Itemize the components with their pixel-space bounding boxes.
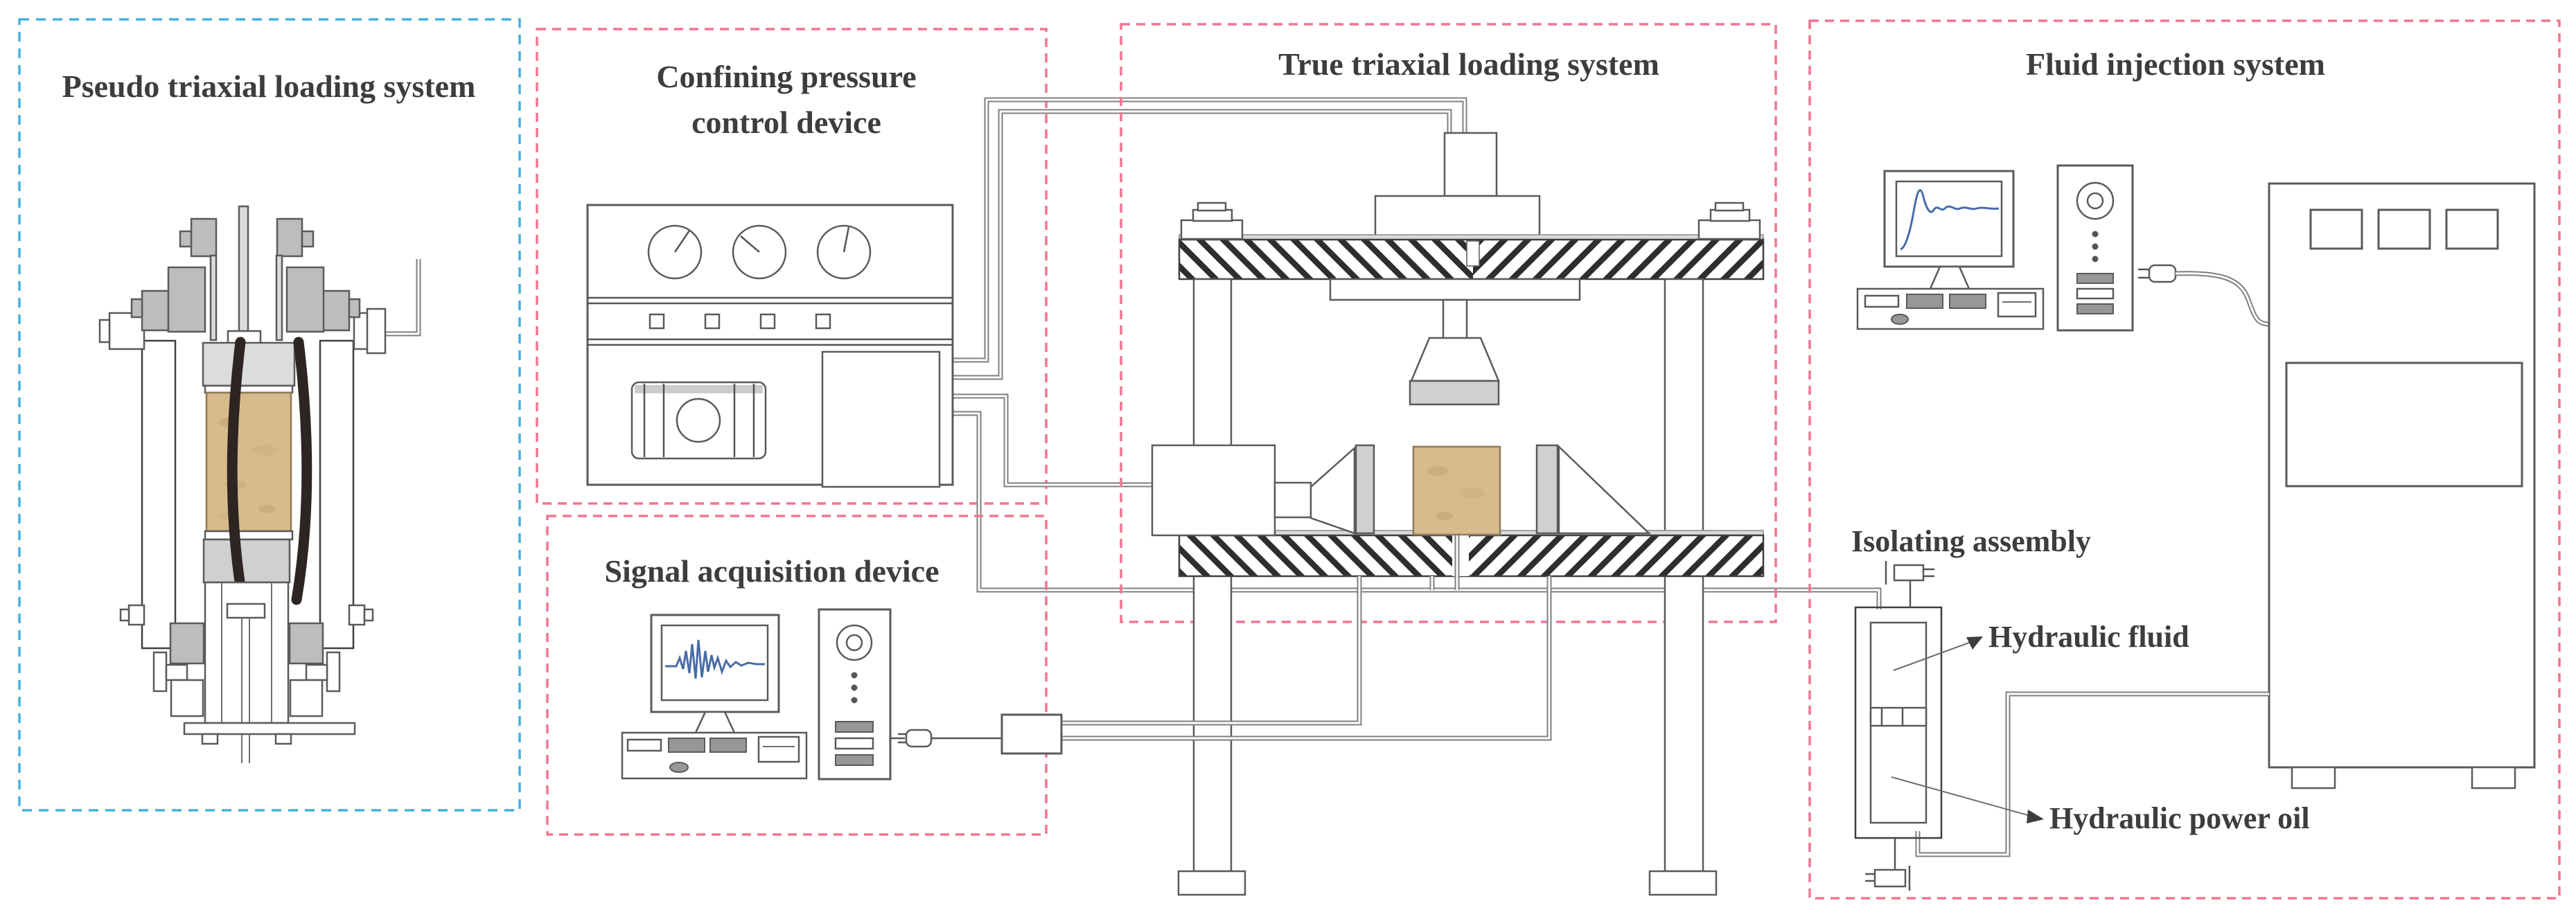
cabinet-window xyxy=(2286,363,2522,486)
hydraulic-cabinet xyxy=(2269,184,2534,788)
true-triaxial-title: True triaxial loading system xyxy=(1278,46,1659,82)
sensor-cable-right xyxy=(1061,576,1549,738)
pressure-dial-icon-1 xyxy=(649,226,701,278)
isolating-assembly: Isolating assembly xyxy=(1851,524,2310,891)
separator-piston xyxy=(1871,708,1926,726)
platen-right xyxy=(1537,445,1558,533)
reaction-wedge xyxy=(1559,447,1649,533)
top-platen xyxy=(203,343,294,386)
platen-left xyxy=(1356,445,1374,533)
injection-monitor-stand xyxy=(1930,267,1969,289)
valve-module xyxy=(822,352,939,487)
diagram-stage: Pseudo triaxial loading system xyxy=(0,0,2576,910)
top-beam-left xyxy=(1179,240,1473,279)
signal-title: Signal acquisition device xyxy=(604,553,939,589)
injection-computer xyxy=(1858,166,2269,330)
horizontal-piston xyxy=(1275,483,1311,517)
sensor-cable-right xyxy=(1061,576,1549,738)
beam-bolt-left xyxy=(1181,203,1242,239)
beam-bolt-right xyxy=(1699,203,1760,239)
rock-specimen-true-triaxial xyxy=(1413,447,1500,535)
base-bar xyxy=(184,723,355,734)
horizontal-loading-head xyxy=(1311,448,1355,533)
confining-control-unit xyxy=(588,205,953,487)
confining-title-line2: control device xyxy=(691,105,881,140)
ram-rod xyxy=(1443,300,1467,339)
pressure-dial-icon-3 xyxy=(818,226,870,278)
table-beam-left xyxy=(1179,535,1454,576)
table-beam-right xyxy=(1467,535,1763,576)
pseudo-panel-title: Pseudo triaxial loading system xyxy=(62,69,476,104)
top-beam-right xyxy=(1473,240,1763,279)
pseudo-triaxial-cell xyxy=(100,206,418,763)
membrane-seal-right xyxy=(297,342,307,600)
monitor-stand xyxy=(696,712,734,733)
valve-icon-top xyxy=(1886,561,1934,607)
upper-crosshead-plate xyxy=(1330,279,1580,300)
left-bolt xyxy=(109,313,144,349)
vertical-loading-head xyxy=(1411,338,1499,381)
injection-desktop-base xyxy=(1858,289,2043,329)
hydraulic-fluid-label: Hydraulic fluid xyxy=(1988,620,2189,654)
panel-fluid-injection: Fluid injection system xyxy=(1810,21,2559,898)
pump-cylinder xyxy=(632,382,766,458)
press-foot-left xyxy=(1179,871,1245,895)
hydraulic-power-oil-callout: Hydraulic power oil xyxy=(1891,777,2310,835)
confining-title-line1: Confining pressure xyxy=(656,59,916,94)
fluid-title: Fluid injection system xyxy=(2026,46,2325,82)
panel-true-triaxial: True triaxial loading system xyxy=(1061,24,1776,895)
cell-wall-right xyxy=(320,341,353,648)
pipe-fitting xyxy=(367,309,385,353)
signal-tower-pc xyxy=(819,609,890,779)
power-cable xyxy=(2176,274,2269,324)
actuator-mount-block xyxy=(1375,196,1540,239)
horizontal-actuator xyxy=(1152,445,1275,535)
plug-icon-2 xyxy=(2138,265,2176,282)
injection-tower-pc xyxy=(2058,166,2133,330)
hydraulic-power-oil-label: Hydraulic power oil xyxy=(2049,801,2310,835)
panel-pseudo-triaxial: Pseudo triaxial loading system xyxy=(19,19,520,810)
junction-box xyxy=(1002,715,1061,753)
isolating-assembly-label: Isolating assembly xyxy=(1851,524,2091,558)
equipment-schematic: Pseudo triaxial loading system xyxy=(0,0,2576,910)
panel-signal-acquisition: Signal acquisition device xyxy=(547,516,1061,835)
rock-specimen-pseudo xyxy=(206,393,291,531)
valve-icon-bottom xyxy=(1865,838,1909,891)
press-foot-right xyxy=(1650,871,1716,895)
desktop-base xyxy=(622,733,806,778)
signal-computer xyxy=(622,609,1061,779)
cell-wall-left xyxy=(142,341,175,648)
bottom-platen xyxy=(204,539,290,582)
axial-rod xyxy=(239,206,248,335)
hydraulic-fluid-callout: Hydraulic fluid xyxy=(1894,620,2189,670)
pressure-dial-icon-2 xyxy=(733,226,786,278)
true-triaxial-press xyxy=(1061,133,1763,895)
vertical-actuator-cylinder xyxy=(1445,133,1497,196)
